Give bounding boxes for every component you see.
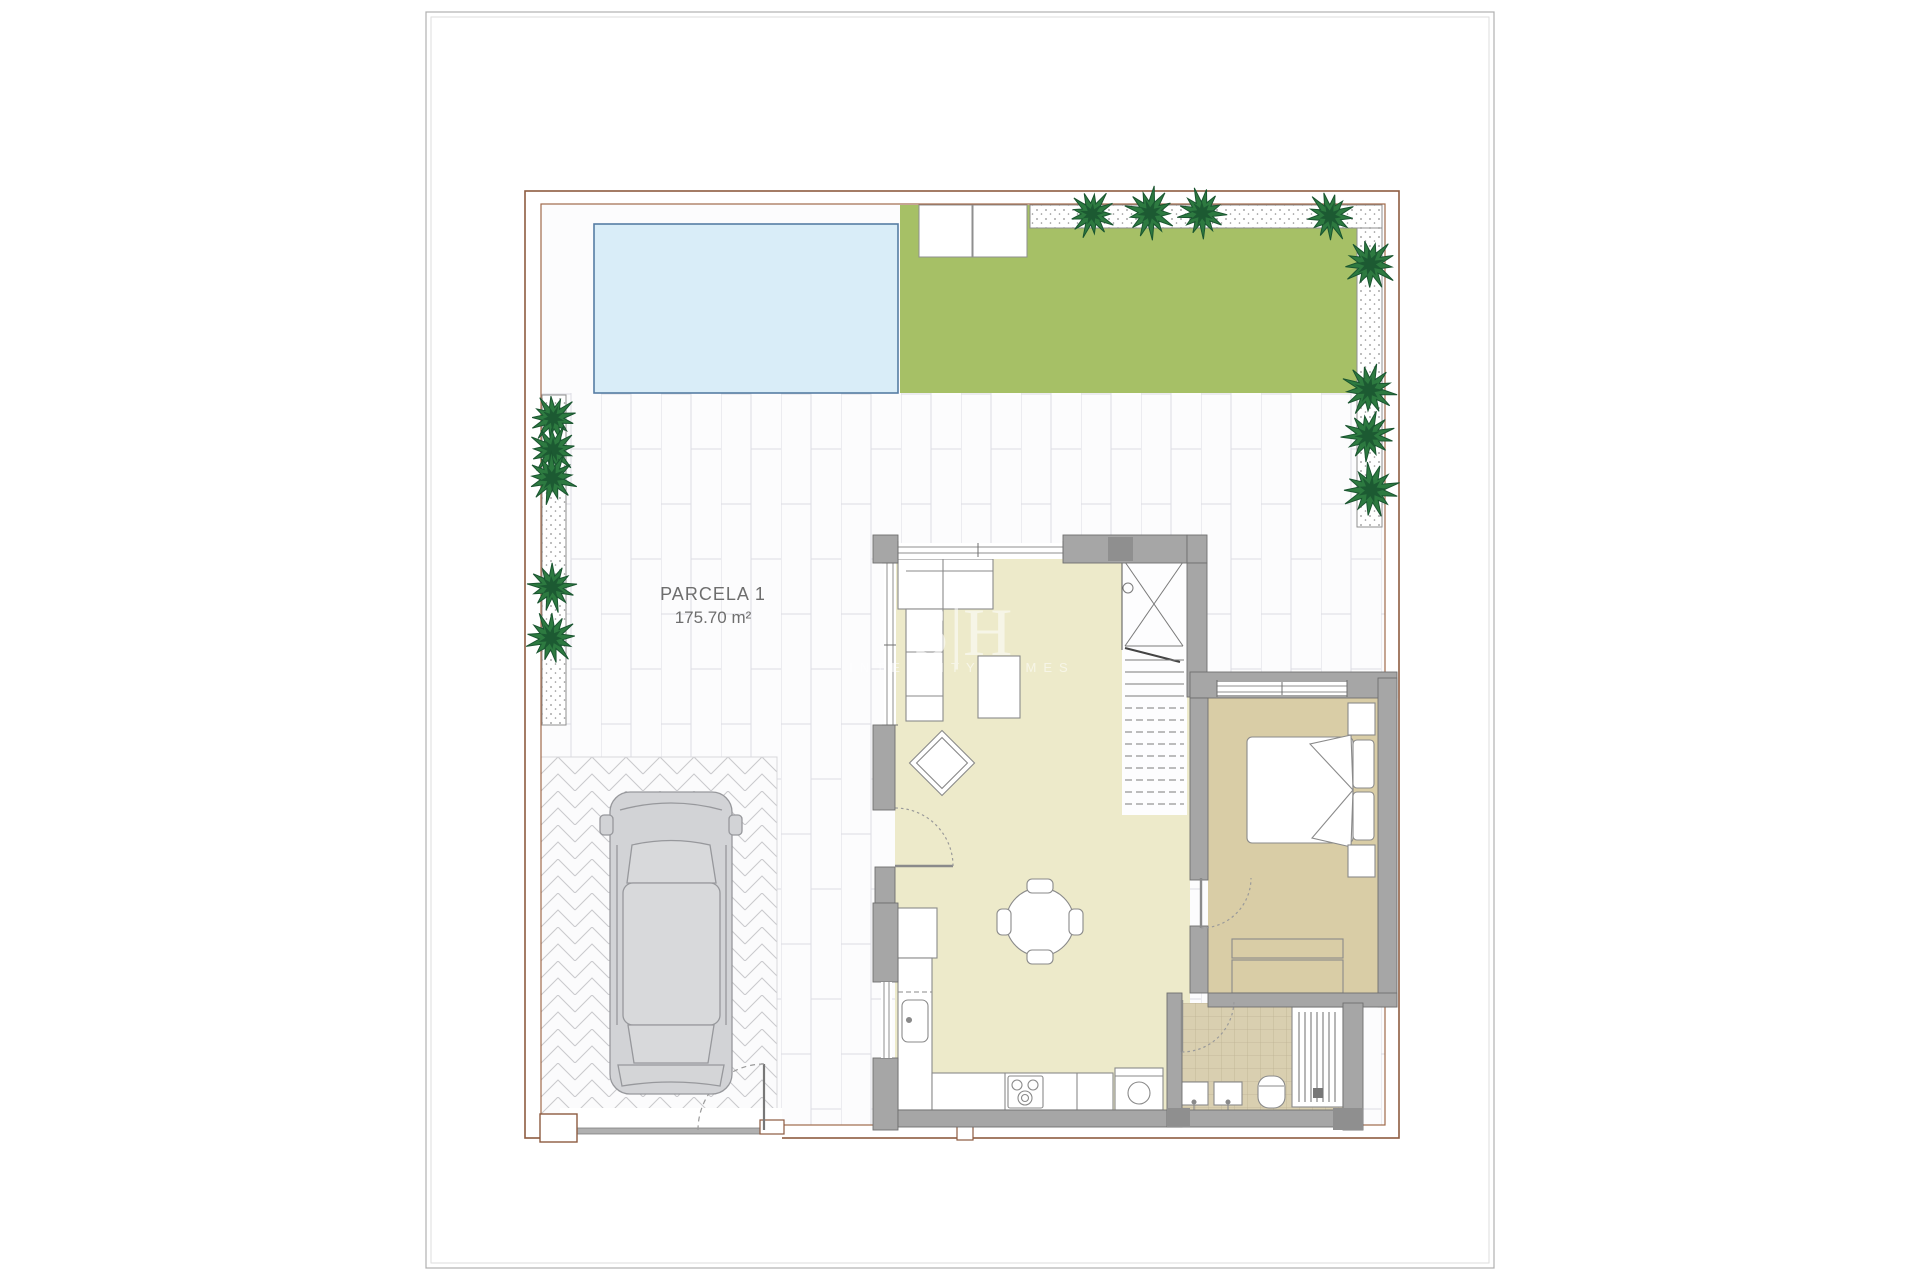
dining-chair-west: [997, 909, 1011, 935]
dining-table: [1006, 888, 1074, 956]
car-roof: [623, 883, 720, 1025]
watermark-monogram: S|H: [912, 594, 1013, 670]
watermark-caption: INTEGRITY HOMES: [849, 660, 1074, 675]
wall-left-mid: [873, 725, 895, 810]
window-kitchen-left: [881, 982, 892, 1058]
window-living-left: [882, 563, 898, 725]
nightstand-top: [1348, 703, 1375, 735]
wall-bedroom-right: [1378, 678, 1397, 1007]
boundary-post: [957, 1126, 973, 1140]
toilet: [1258, 1076, 1285, 1108]
closet-shelf-2: [1232, 960, 1343, 993]
dining-chair-north: [1027, 879, 1053, 893]
gate-post-left: [540, 1114, 577, 1142]
burner-2: [1028, 1080, 1038, 1090]
wall-bottom-endcap: [1333, 1108, 1363, 1130]
burner-1: [1012, 1080, 1022, 1090]
parcel-area-label: 175.70 m²: [675, 608, 752, 627]
stairwell-floor: [1122, 557, 1187, 815]
wall-bedroom-left-lower: [1190, 926, 1208, 993]
nightstand-bottom: [1348, 845, 1375, 877]
wall-bathroom-left: [1167, 993, 1182, 1127]
wall-top-inset: [1108, 537, 1133, 561]
wall-bedroom-left: [1190, 698, 1208, 880]
wall-left-bottom: [873, 1058, 898, 1130]
car-rear-window: [628, 1025, 714, 1063]
window-living-top: [898, 541, 1063, 559]
floorplan-drawing: PARCELA 1 175.70 m² S|H INTEGRITY HOMES: [0, 0, 1920, 1280]
car-mirror-left: [600, 815, 613, 835]
closet-shelf-1: [1232, 939, 1343, 958]
wall-pillar-ne: [1187, 535, 1207, 563]
wall-bath-pillar: [1167, 1108, 1190, 1127]
burner-3-inner: [1022, 1095, 1029, 1102]
car-mirror-right: [729, 815, 742, 835]
swimming-pool: [594, 224, 898, 393]
car-windshield: [627, 841, 716, 884]
driveway-gate-bar: [577, 1128, 762, 1134]
wall-bottom: [898, 1110, 1345, 1127]
dining-chair-south: [1027, 950, 1053, 964]
wall-pillar-nw: [873, 535, 898, 563]
bed-pillow-top: [1353, 740, 1374, 788]
floorplan-page: PARCELA 1 175.70 m² S|H INTEGRITY HOMES: [0, 0, 1920, 1280]
car: [600, 792, 742, 1094]
fridge: [895, 908, 937, 958]
sink-drain: [907, 1018, 912, 1023]
parcel-label: PARCELA 1: [660, 584, 766, 604]
garden-shed-left: [919, 205, 972, 257]
kitchen-sink: [902, 1000, 928, 1042]
bed-pillow-bottom: [1353, 792, 1374, 840]
washing-machine-door: [1128, 1082, 1150, 1104]
shower-drain: [1313, 1088, 1323, 1098]
garden-shed-right: [973, 205, 1027, 257]
wall-left-door-stub: [875, 867, 895, 903]
dining-chair-east: [1069, 909, 1083, 935]
window-bedroom-top: [1217, 680, 1347, 697]
wall-left-lower: [873, 903, 898, 982]
wall-bedroom-bottom: [1208, 993, 1397, 1007]
